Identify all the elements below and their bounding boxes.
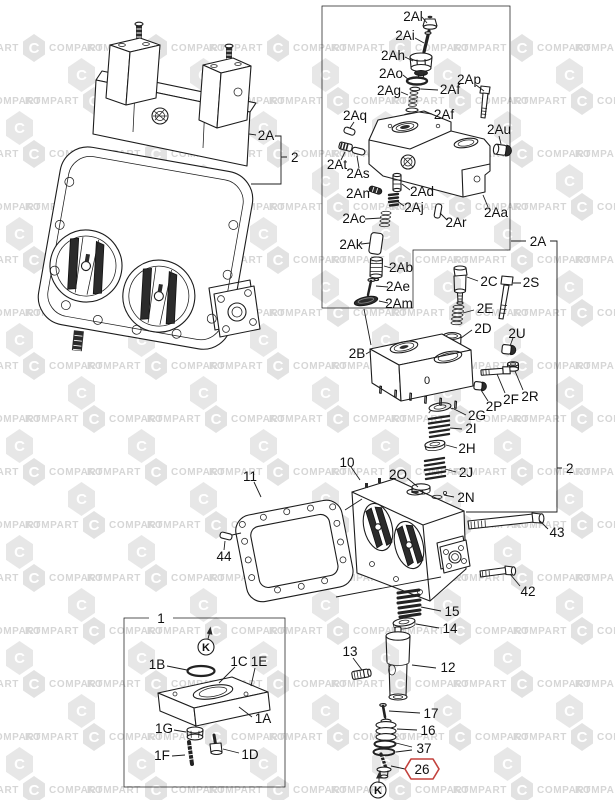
o-ring-1b (188, 666, 215, 676)
callout-2at: 2At (327, 157, 348, 172)
callout-2am: 2Am (385, 296, 413, 311)
callout-37: 37 (416, 741, 431, 756)
callout-2al: 2Al (403, 9, 423, 24)
callout-12: 12 (440, 660, 455, 675)
callout-2-box: 2 (566, 461, 574, 476)
callout-2ao: 2Ao (379, 66, 403, 81)
callout-2-main: 2 (291, 150, 299, 165)
plunger-2ab (370, 257, 383, 281)
adapter-kit-box: K (124, 611, 285, 787)
callout-1f: 1F (154, 748, 170, 763)
unloader-body-2b: 0 (370, 334, 473, 408)
compressor-assembly-drawing (30, 22, 260, 376)
callout-2h: 2H (458, 441, 475, 456)
callout-2ab: 2Ab (389, 260, 413, 275)
callout-13: 13 (342, 644, 357, 659)
callout-42: 42 (520, 584, 535, 599)
callout-2af-lower: 2Af (434, 107, 455, 122)
callout-2r: 2R (521, 389, 539, 404)
callout-2aj: 2Aj (404, 200, 424, 215)
washer-2g (428, 401, 453, 413)
callout-2aa: 2Aa (484, 205, 509, 220)
exploded-parts-diagram: 0 (0, 0, 615, 800)
left-cylinder (106, 22, 160, 105)
callout-2n: 2N (457, 490, 474, 505)
callout-2au: 2Au (487, 122, 511, 137)
callout-15: 15 (444, 604, 459, 619)
callout-1a: 1A (255, 711, 272, 726)
datum-label: K (202, 642, 210, 654)
pin-13 (351, 668, 371, 679)
gasket-11 (233, 497, 356, 604)
callout-2d: 2D (474, 321, 492, 336)
callout-14: 14 (442, 621, 458, 636)
right-cylinder (199, 44, 251, 128)
callout-2u: 2U (508, 326, 525, 341)
callout-2ar: 2Ar (445, 215, 467, 230)
callout-1c: 1C (230, 654, 248, 669)
callout-16: 16 (420, 723, 435, 738)
bolt-42 (480, 566, 516, 577)
valve-kit-box (322, 6, 512, 308)
callout-1e: 1E (251, 654, 268, 669)
callout-17: 17 (423, 706, 438, 721)
bushing-16 (376, 719, 396, 740)
highlighted-callout-26: 26 (405, 759, 439, 779)
callout-2f: 2F (503, 392, 519, 407)
callout-10: 10 (339, 455, 354, 470)
bolt-1d (210, 735, 222, 755)
callout-2c: 2C (480, 274, 498, 289)
casting-mark: 0 (424, 375, 430, 387)
adapter-plate-1a (158, 677, 270, 726)
crankcase (30, 143, 257, 377)
callout-2e: 2E (477, 301, 494, 316)
callout-2aq: 2Aq (343, 108, 367, 123)
callout-2o: 2O (389, 467, 407, 482)
callout-2ap: 2Ap (457, 72, 481, 87)
callout-2ac: 2Ac (342, 211, 366, 226)
nut-1g (187, 727, 203, 740)
callout-1d: 1D (241, 747, 259, 762)
callout-43: 43 (549, 525, 564, 540)
callout-2ah: 2Ah (381, 48, 405, 63)
callout-2ae: 2Ae (386, 279, 410, 294)
bolt-43 (468, 513, 544, 529)
callout-2ad: 2Ad (410, 184, 434, 199)
callout-2an: 2An (346, 186, 370, 201)
callout-2a-box: 2A (530, 234, 547, 249)
spring-2ac (380, 211, 392, 226)
callout-44: 44 (216, 549, 232, 564)
callout-2as: 2As (346, 166, 370, 181)
callout-2ak: 2Ak (339, 237, 363, 252)
plug-2au (493, 143, 512, 156)
callout-2p: 2P (486, 399, 503, 414)
callout-2j: 2J (459, 465, 473, 480)
washer-2h (424, 439, 445, 452)
parts-diagram-page: KOMPARTCCOMPARTCKOMPARTCCOMPARTCKOMPARTC… (0, 0, 615, 800)
callout-2i: 2I (465, 421, 476, 436)
callout-1: 1 (157, 611, 165, 626)
callout-2ai: 2Ai (395, 28, 415, 43)
pin-2ad (393, 173, 401, 191)
callout-1g: 1G (155, 721, 173, 736)
unloader-piston-12 (386, 627, 410, 700)
datum-label: K (374, 785, 382, 797)
rod-2ae (368, 279, 375, 295)
callout-2s: 2S (523, 275, 540, 290)
group-brackets (249, 134, 562, 512)
callout-2b: 2B (349, 346, 366, 361)
callout-2a-main: 2A (258, 128, 275, 143)
callout-11: 11 (243, 469, 257, 484)
callout-2ag: 2Ag (377, 83, 401, 98)
pin-17 (380, 704, 386, 720)
rings-37 (374, 741, 396, 756)
callout-1b: 1B (149, 657, 166, 672)
callout-26: 26 (414, 762, 429, 777)
bolt-2f (481, 366, 510, 376)
disc-2am (353, 294, 378, 307)
stud-1f (188, 742, 195, 764)
datum-k-1: K (198, 627, 214, 656)
bottom-stud (72, 330, 84, 351)
